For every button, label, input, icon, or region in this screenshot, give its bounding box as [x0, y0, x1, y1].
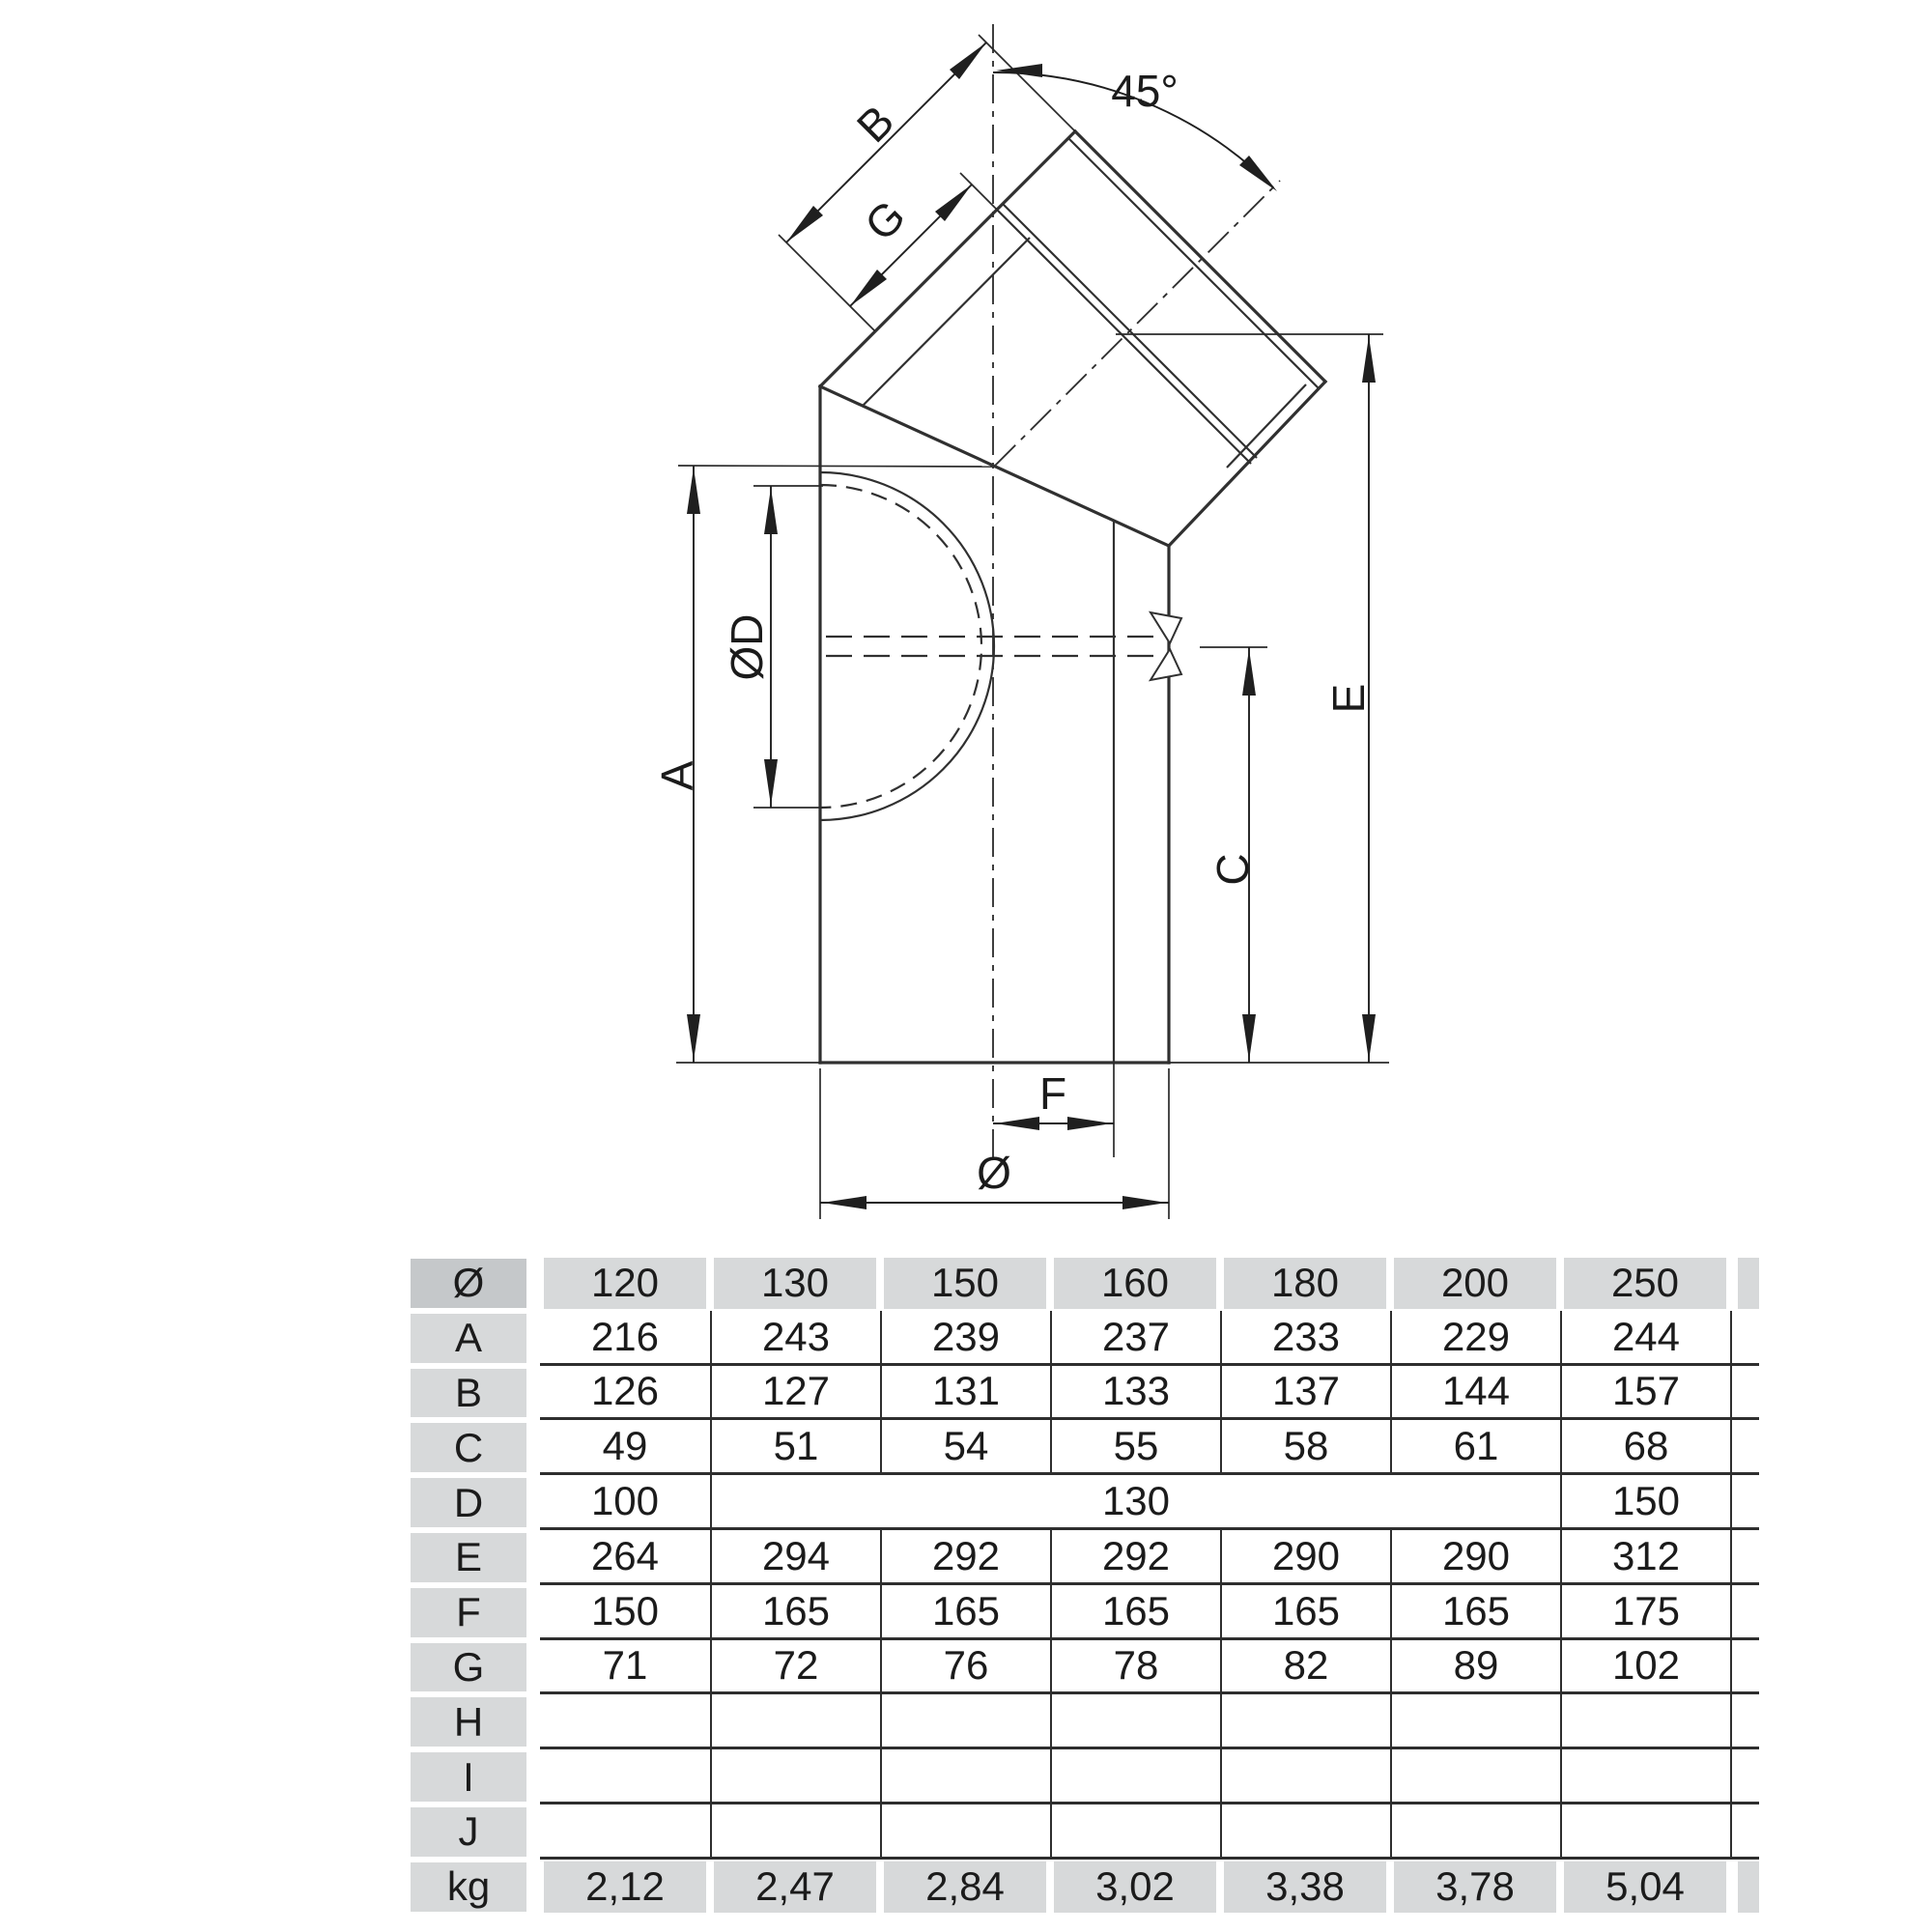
label-dia: Ø — [977, 1148, 1011, 1198]
row-label: B — [411, 1369, 526, 1418]
label-f: F — [1039, 1068, 1066, 1119]
value-cell: 51 — [710, 1420, 880, 1472]
dimension-arrowheads — [687, 43, 1376, 1209]
ext-bg-lower — [779, 235, 875, 331]
right-gap — [1730, 1749, 1738, 1802]
row-label-kg: kg — [411, 1862, 526, 1912]
value-cell — [540, 1804, 710, 1857]
label-angle-45: 45° — [1111, 66, 1179, 116]
value-cell: 144 — [1390, 1366, 1560, 1418]
label-c: C — [1207, 853, 1258, 885]
column-gap — [526, 1311, 540, 1366]
truncated-column-cell — [1738, 1258, 1759, 1309]
dimension-labels: A ØD C E F Ø B G 45° — [652, 66, 1374, 1198]
value-cell: 229 — [1390, 1311, 1560, 1363]
value-cell: 290 — [1220, 1530, 1390, 1582]
row-label: H — [411, 1697, 526, 1747]
value-cell: 292 — [1050, 1530, 1220, 1582]
arrow-b-bottom — [786, 206, 823, 242]
value-cell: 71 — [540, 1640, 710, 1692]
gray-cell: 180 — [1220, 1258, 1390, 1309]
row-cells: 264294292292290290312 — [540, 1530, 1759, 1585]
truncated-column-cell — [1738, 1749, 1759, 1802]
value-cell — [1560, 1804, 1730, 1857]
value-cell: 68 — [1560, 1420, 1730, 1472]
arrow-dia-right — [1122, 1196, 1167, 1209]
column-gap — [526, 1366, 540, 1421]
row-label: I — [411, 1752, 526, 1802]
column-gap — [526, 1749, 540, 1804]
value-cell: 150 — [1560, 1475, 1730, 1527]
row-cells: 150165165165165165175 — [540, 1585, 1759, 1640]
right-gap — [1730, 1530, 1738, 1582]
value-cell: 165 — [710, 1585, 880, 1637]
value-cell: 243 — [710, 1311, 880, 1363]
table-footer-row-cells: 2,122,472,843,023,383,785,04 — [540, 1860, 1759, 1915]
value-cell: 165 — [1390, 1585, 1560, 1637]
value-cell — [1220, 1694, 1390, 1747]
gray-cell: 3,02 — [1050, 1861, 1220, 1913]
column-gap — [526, 1420, 540, 1475]
elbow-45deg-drawing: A ØD C E F Ø B G 45° — [0, 0, 1932, 1256]
value-cell: 133 — [1050, 1366, 1220, 1418]
table-footer-row: kg2,122,472,843,023,383,785,04 — [411, 1860, 1759, 1915]
column-gap — [526, 1530, 540, 1585]
gray-cell: 5,04 — [1560, 1861, 1730, 1913]
column-gap — [526, 1640, 540, 1695]
value-cell — [1050, 1694, 1220, 1747]
value-cell: 165 — [880, 1585, 1050, 1637]
column-gap — [526, 1860, 540, 1915]
value-cell: 165 — [1050, 1585, 1220, 1637]
angled-centerline — [995, 181, 1280, 466]
value-cell: 76 — [880, 1640, 1050, 1692]
right-gap — [1730, 1366, 1738, 1418]
label-g: G — [855, 190, 915, 250]
right-gap — [1730, 1860, 1738, 1915]
arrow-od-top — [764, 488, 778, 534]
row-cells — [540, 1804, 1759, 1860]
value-cell: 102 — [1560, 1640, 1730, 1692]
value-cell: 233 — [1220, 1311, 1390, 1363]
column-gap — [526, 1585, 540, 1640]
value-cell: 72 — [710, 1640, 880, 1692]
arrow-od-bottom — [764, 759, 778, 806]
marker-lower-wing — [1151, 649, 1181, 680]
value-cell — [540, 1694, 710, 1747]
row-cells: 100130150 — [540, 1475, 1759, 1530]
dimension-lines — [694, 43, 1369, 1203]
value-cell: 82 — [1220, 1640, 1390, 1692]
label-a: A — [652, 760, 702, 790]
value-cell: 54 — [880, 1420, 1050, 1472]
value-cell: 150 — [540, 1585, 710, 1637]
right-gap — [1730, 1640, 1738, 1692]
arrow-a-top — [687, 468, 700, 514]
value-cell — [880, 1804, 1050, 1857]
table-row: H — [411, 1694, 1759, 1749]
value-cell — [710, 1804, 880, 1857]
branch-end-face — [1075, 131, 1325, 382]
arrow-f-left — [995, 1117, 1039, 1130]
column-gap — [526, 1804, 540, 1860]
truncated-column-cell — [1738, 1530, 1759, 1582]
truncated-column-cell — [1738, 1640, 1759, 1692]
row-cells — [540, 1749, 1759, 1804]
truncated-column-cell — [1738, 1694, 1759, 1747]
row-label: J — [411, 1807, 526, 1857]
gray-cell: 2,12 — [540, 1861, 710, 1913]
gray-cell: 130 — [710, 1258, 880, 1309]
value-cell — [1560, 1694, 1730, 1747]
row-cells: 216243239237233229244 — [540, 1311, 1759, 1366]
value-cell: 55 — [1050, 1420, 1220, 1472]
value-cell: 49 — [540, 1420, 710, 1472]
label-od: ØD — [722, 614, 772, 681]
extension-lines — [676, 35, 1389, 1219]
right-gap — [1730, 1311, 1738, 1363]
arrow-dia-left — [822, 1196, 867, 1209]
value-cell — [1390, 1749, 1560, 1802]
marker-upper-wing — [1151, 612, 1181, 643]
value-cell — [1220, 1749, 1390, 1802]
value-cell: 165 — [1220, 1585, 1390, 1637]
value-cell: 264 — [540, 1530, 710, 1582]
arrow-e-bottom — [1362, 1014, 1376, 1061]
row-label: F — [411, 1588, 526, 1637]
table-row: J — [411, 1804, 1759, 1860]
cleanout-opening-arc — [820, 472, 994, 820]
right-gap — [1730, 1256, 1738, 1311]
gray-cell: 160 — [1050, 1258, 1220, 1309]
value-cell — [1560, 1749, 1730, 1802]
arrow-b-top — [950, 43, 986, 79]
row-cells: 126127131133137144157 — [540, 1366, 1759, 1421]
table-row: I — [411, 1749, 1759, 1804]
table-row: A216243239237233229244 — [411, 1311, 1759, 1366]
value-cell: 216 — [540, 1311, 710, 1363]
truncated-column-cell — [1738, 1861, 1759, 1913]
gray-cell: 120 — [540, 1258, 710, 1309]
label-e: E — [1323, 684, 1374, 714]
cleanout-opening-arc-hidden — [820, 485, 981, 808]
label-b: B — [847, 96, 903, 152]
value-cell: 312 — [1560, 1530, 1730, 1582]
value-cell: 237 — [1050, 1311, 1220, 1363]
value-cell — [880, 1749, 1050, 1802]
value-cell — [1050, 1804, 1220, 1857]
value-cell — [1390, 1694, 1560, 1747]
value-cell: 58 — [1220, 1420, 1390, 1472]
right-gap — [1730, 1585, 1738, 1637]
branch-right-edge-inner — [1227, 384, 1306, 468]
truncated-column-cell — [1738, 1475, 1759, 1527]
arrow-g-top — [935, 185, 972, 221]
arrow-g-bottom — [850, 270, 887, 306]
right-gap — [1730, 1475, 1738, 1527]
value-cell: 175 — [1560, 1585, 1730, 1637]
table-row: E264294292292290290312 — [411, 1530, 1759, 1585]
row-label: A — [411, 1314, 526, 1363]
truncated-column-cell — [1738, 1311, 1759, 1363]
truncated-column-cell — [1738, 1420, 1759, 1472]
value-cell: 100 — [540, 1475, 710, 1527]
truncated-column-cell — [1738, 1366, 1759, 1418]
gray-cell: 150 — [880, 1258, 1050, 1309]
row-cells — [540, 1694, 1759, 1749]
value-cell: 89 — [1390, 1640, 1560, 1692]
column-gap — [526, 1256, 540, 1311]
value-cell — [540, 1749, 710, 1802]
table-header-row-cells: 120130150160180200250 — [540, 1256, 1759, 1311]
gray-cell: 2,84 — [880, 1861, 1050, 1913]
row-label: E — [411, 1533, 526, 1582]
value-cell — [880, 1694, 1050, 1747]
arrow-e-top — [1362, 336, 1376, 383]
gray-cell: 2,47 — [710, 1861, 880, 1913]
truncated-column-cell — [1738, 1804, 1759, 1857]
arrow-c-top — [1242, 649, 1256, 696]
row-label: D — [411, 1478, 526, 1527]
merged-value-cell: 130 — [710, 1475, 1560, 1527]
value-cell — [710, 1749, 880, 1802]
hidden-lines — [820, 485, 1163, 808]
pipe-detail-lines — [820, 138, 1319, 1063]
row-cells: 49515455586168 — [540, 1420, 1759, 1475]
right-gap — [1730, 1694, 1738, 1747]
value-cell: 292 — [880, 1530, 1050, 1582]
page: A ØD C E F Ø B G 45° Ø120130150160180200… — [0, 0, 1932, 1932]
gray-cell: 3,38 — [1220, 1861, 1390, 1913]
arrow-f-right — [1067, 1117, 1112, 1130]
wall-position-marker-icon — [1151, 612, 1181, 680]
right-gap — [1730, 1420, 1738, 1472]
inner-joint-line — [863, 238, 1030, 406]
value-cell: 157 — [1560, 1366, 1730, 1418]
value-cell: 137 — [1220, 1366, 1390, 1418]
table-row: G717276788289102 — [411, 1640, 1759, 1695]
gray-cell: 200 — [1390, 1258, 1560, 1309]
value-cell — [1050, 1749, 1220, 1802]
value-cell: 239 — [880, 1311, 1050, 1363]
value-cell: 127 — [710, 1366, 880, 1418]
column-gap — [526, 1475, 540, 1530]
dimension-table: Ø120130150160180200250A21624323923723322… — [411, 1256, 1759, 1915]
value-cell: 61 — [1390, 1420, 1560, 1472]
gray-cell: 3,78 — [1390, 1861, 1560, 1913]
value-cell — [1220, 1804, 1390, 1857]
value-cell — [1390, 1804, 1560, 1857]
truncated-column-cell — [1738, 1585, 1759, 1637]
row-label: G — [411, 1643, 526, 1692]
arrow-45-right — [1239, 156, 1277, 191]
table-row: B126127131133137144157 — [411, 1366, 1759, 1421]
value-cell: 78 — [1050, 1640, 1220, 1692]
value-cell: 244 — [1560, 1311, 1730, 1363]
corner-cell-diameter: Ø — [411, 1259, 526, 1308]
value-cell: 131 — [880, 1366, 1050, 1418]
table-header-row: Ø120130150160180200250 — [411, 1256, 1759, 1311]
gray-cell: 250 — [1560, 1258, 1730, 1309]
arrow-a-bottom — [687, 1014, 700, 1061]
right-gap — [1730, 1804, 1738, 1857]
row-cells: 717276788289102 — [540, 1640, 1759, 1695]
column-gap — [526, 1694, 540, 1749]
value-cell: 294 — [710, 1530, 880, 1582]
drawing-canvas: A ØD C E F Ø B G 45° — [0, 0, 1932, 1256]
table-row: C49515455586168 — [411, 1420, 1759, 1475]
row-label: C — [411, 1423, 526, 1472]
table-row: D100130150 — [411, 1475, 1759, 1530]
branch-end-face-inner — [1068, 138, 1319, 388]
table-row: F150165165165165165175 — [411, 1585, 1759, 1640]
arrow-c-bottom — [1242, 1014, 1256, 1061]
ext-vertex-level — [678, 466, 992, 467]
value-cell: 290 — [1390, 1530, 1560, 1582]
value-cell: 126 — [540, 1366, 710, 1418]
value-cell — [710, 1694, 880, 1747]
